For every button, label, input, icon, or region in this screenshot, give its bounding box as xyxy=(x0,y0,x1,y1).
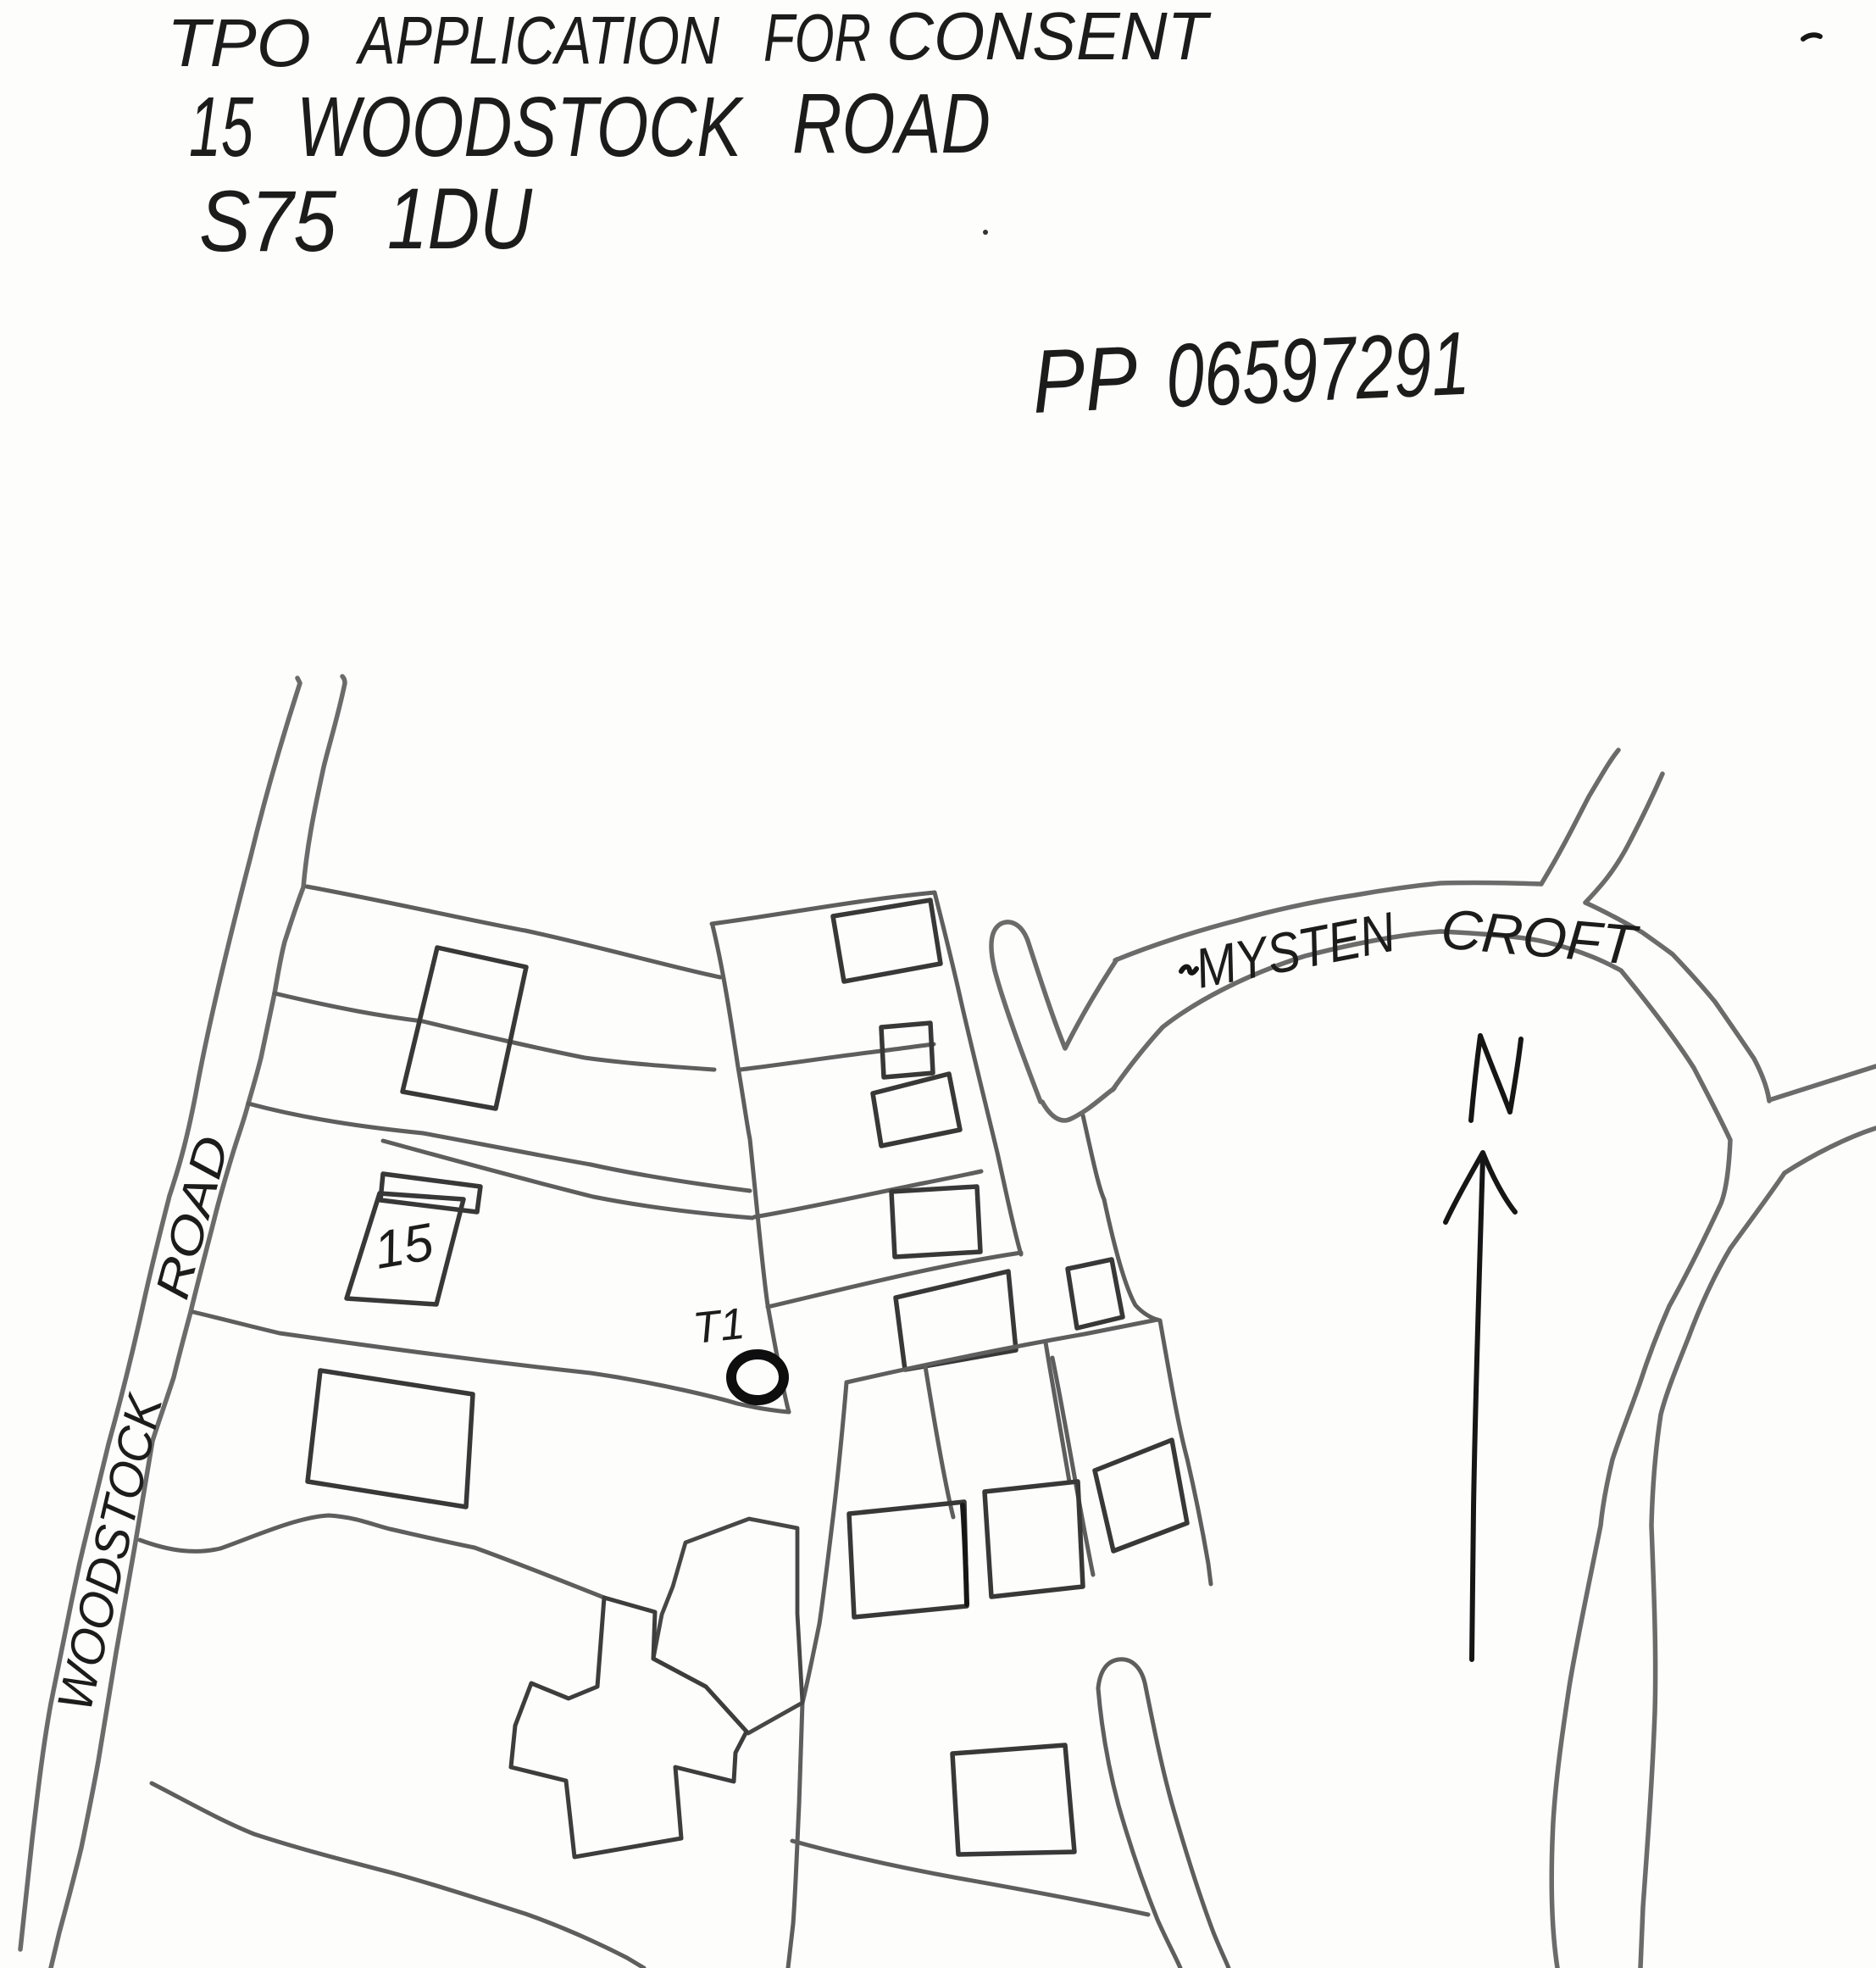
svg-text:15: 15 xyxy=(369,1213,437,1281)
svg-text:APPLICATION: APPLICATION xyxy=(356,3,719,78)
svg-text:CONSENT: CONSENT xyxy=(886,0,1212,74)
svg-text:FOR: FOR xyxy=(763,0,871,75)
svg-text:WOODSTOCK: WOODSTOCK xyxy=(297,80,744,175)
svg-text:TPO: TPO xyxy=(167,5,311,81)
svg-text:ROAD: ROAD xyxy=(792,76,991,171)
svg-text:06597291: 06597291 xyxy=(1164,314,1472,427)
svg-text:S75: S75 xyxy=(199,173,336,270)
svg-text:1DU: 1DU xyxy=(387,170,533,267)
svg-text:PP: PP xyxy=(1030,328,1140,432)
svg-text:T1: T1 xyxy=(691,1299,747,1354)
svg-text:15: 15 xyxy=(189,80,253,175)
